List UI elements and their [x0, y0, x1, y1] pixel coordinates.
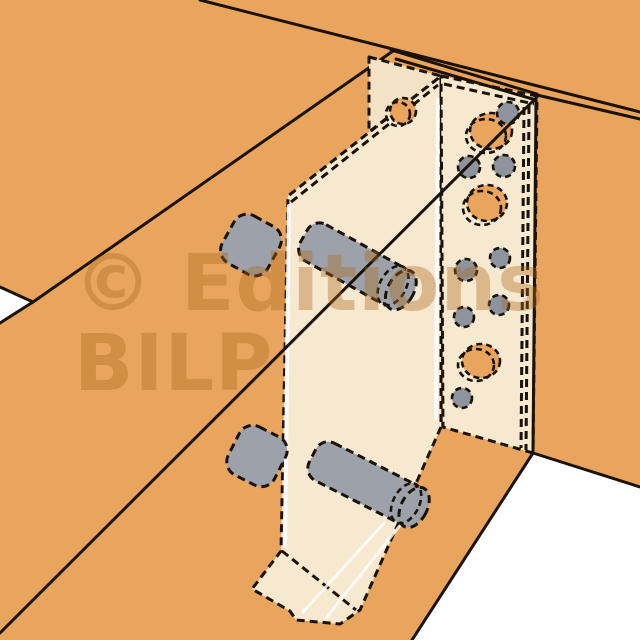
- timber-bracket-illustration: © Editions BILP: [0, 0, 640, 640]
- pin-1: [497, 102, 519, 124]
- watermark-line2: BILP: [74, 319, 273, 409]
- pin-3: [493, 155, 515, 177]
- large-hole-2: [467, 185, 507, 221]
- illustration-canvas: © Editions BILP: [0, 0, 640, 640]
- watermark-line1: © Editions: [74, 239, 545, 329]
- pin-8: [452, 388, 472, 408]
